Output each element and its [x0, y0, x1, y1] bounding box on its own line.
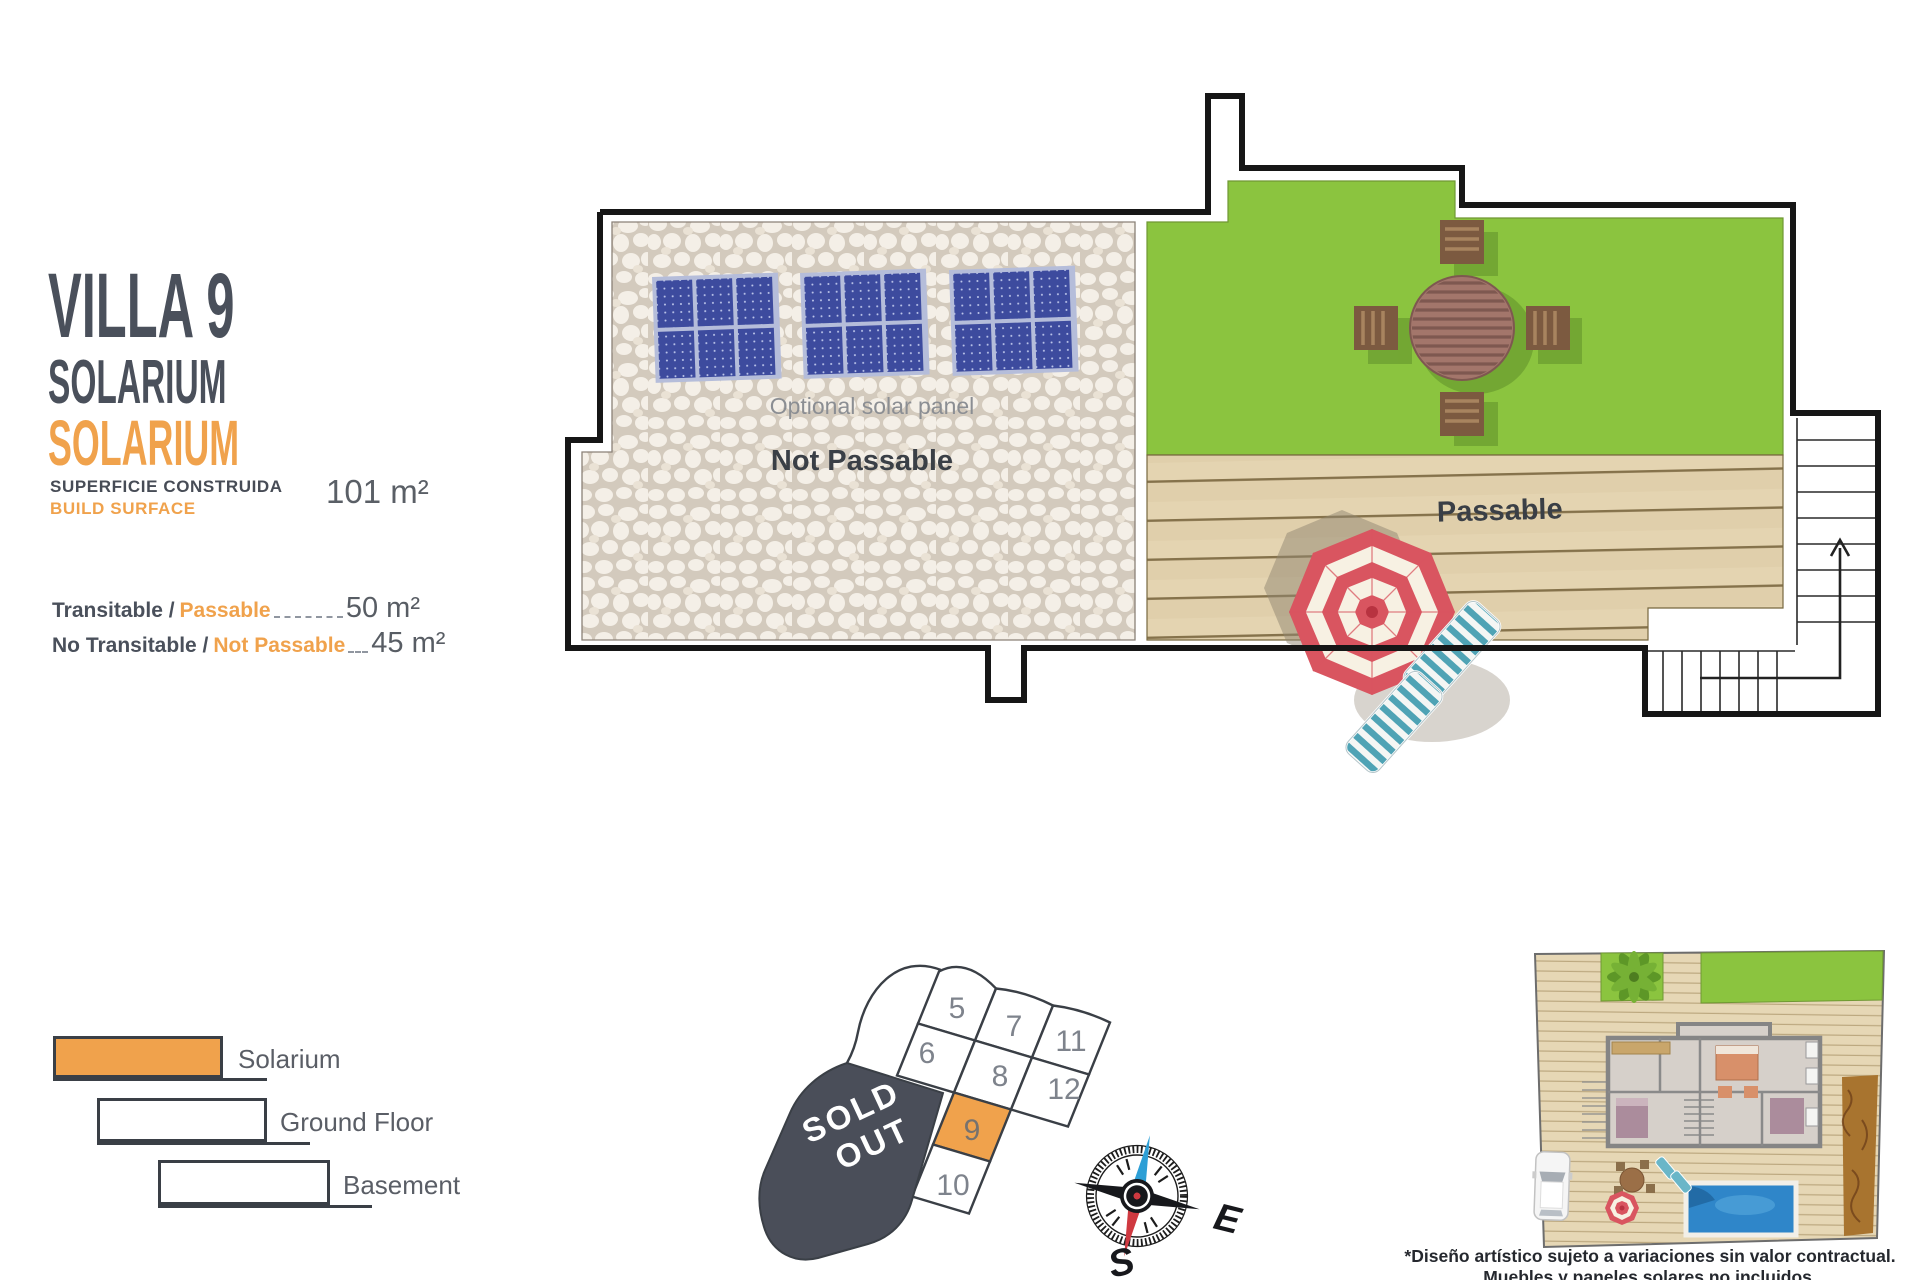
solar-panel-note: Optional solar panel [770, 393, 975, 419]
svg-text:6: 6 [919, 1037, 936, 1070]
mini-dirt-area [1842, 1075, 1878, 1236]
svg-text:5: 5 [949, 992, 966, 1025]
plot-map: SOLD OUT 5 7 11 6 8 12 9 10 [759, 966, 1110, 1260]
svg-text:7: 7 [1006, 1010, 1023, 1043]
svg-text:11: 11 [1055, 1025, 1086, 1058]
solarium-floor-plan: Optional solar panel [568, 96, 1878, 776]
mini-site-plan [1531, 950, 1884, 1247]
plan-drawing: Optional solar panel [0, 0, 1920, 1280]
mini-pool [1686, 1183, 1796, 1235]
mini-parasol [1605, 1191, 1639, 1225]
svg-text:10: 10 [936, 1169, 969, 1202]
compass-east-label: E [1210, 1196, 1246, 1243]
page: VILLA 9 SOLARIUM SOLARIUM SUPERFICIE CON… [0, 0, 1920, 1280]
mini-house [1582, 1024, 1820, 1146]
not-passable-label: Not Passable [771, 445, 953, 477]
mini-car [1531, 1151, 1573, 1220]
mini-table [1620, 1168, 1644, 1192]
passable-label: Passable [1436, 493, 1563, 528]
compass: E S [1062, 1122, 1247, 1280]
svg-text:8: 8 [992, 1060, 1009, 1093]
mini-grass [1701, 951, 1883, 1003]
svg-text:12: 12 [1047, 1073, 1080, 1106]
svg-text:9: 9 [964, 1114, 981, 1147]
